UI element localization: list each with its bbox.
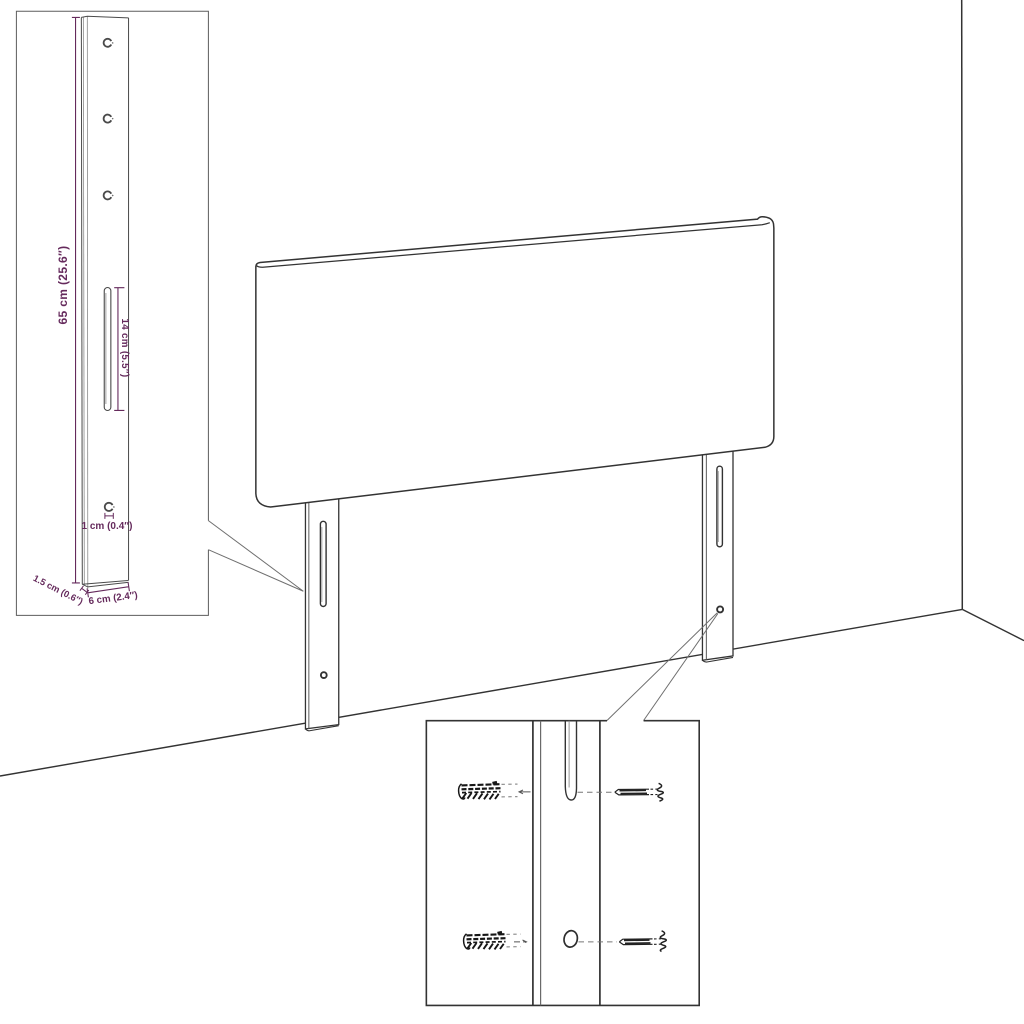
svg-text:65 cm (25.6″): 65 cm (25.6″): [56, 245, 70, 324]
svg-text:14 cm (5.5″): 14 cm (5.5″): [119, 319, 130, 378]
svg-text:1 cm (0.4″): 1 cm (0.4″): [82, 521, 133, 532]
